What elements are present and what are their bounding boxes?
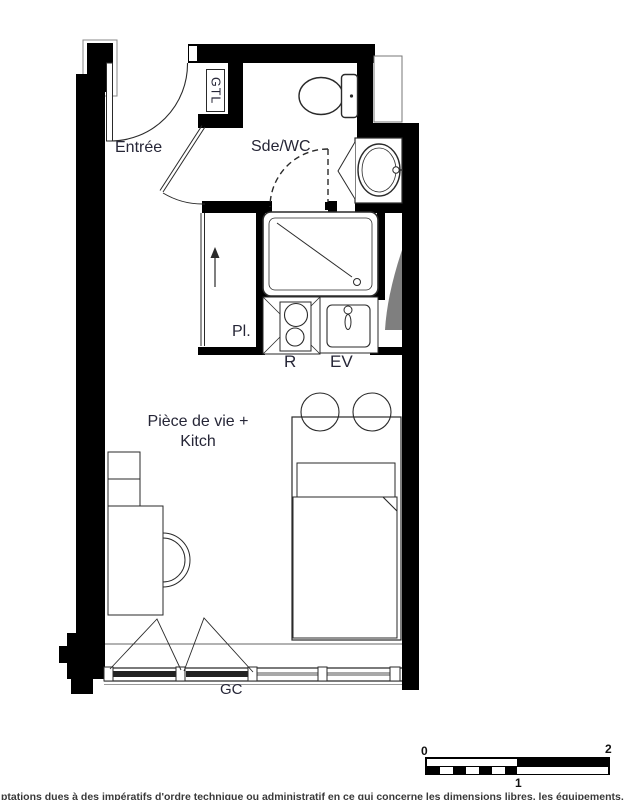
scale-end: 2 [605,742,612,756]
washbasin [338,138,403,203]
label-sink-ev: EV [330,352,353,372]
door-hinge-block [325,202,333,210]
scale-start: 0 [421,744,428,758]
window-swing-triangle [110,619,181,670]
shower-tray [263,212,378,296]
label-guardrail: GC [220,681,243,698]
floor-plan: Entrée Sde/WC GTL Pl. R EV Pièce de vie … [0,0,624,800]
scale-bar: 0 2 1 [425,757,610,775]
closet-sliding-door [201,213,220,346]
desk [108,452,163,615]
scale-bar-bottom-row [427,767,608,774]
duct-shading [385,250,402,330]
label-appliance-r: R [284,352,296,372]
bathroom-door-dashed [270,149,328,207]
window-swing-triangle [184,618,253,672]
footer-note: ptations dues à des impératifs d'ordre t… [1,791,624,800]
entrance-door [107,63,188,141]
label-placard: Pl. [232,323,251,341]
label-entree: Entrée [115,139,162,157]
chair [163,533,190,587]
kitchen-sink-EV [320,297,378,353]
label-gtl: GTL [206,69,225,112]
scale-bar-top-row [427,759,608,767]
label-living-line2: Kitch [128,432,268,452]
wc-door [160,126,205,205]
label-living-line1: Pièce de vie + [128,412,268,432]
bed [292,393,401,640]
arrow-up-icon [211,247,220,258]
toilet [299,75,358,118]
scale-middle: 1 [515,776,522,790]
label-sde-wc: Sde/WC [251,138,311,156]
label-living-room: Pièce de vie + Kitch [128,412,268,452]
appliance-slot-R [263,297,320,354]
technical-shaft [374,56,402,122]
plan-drawing [0,0,624,800]
